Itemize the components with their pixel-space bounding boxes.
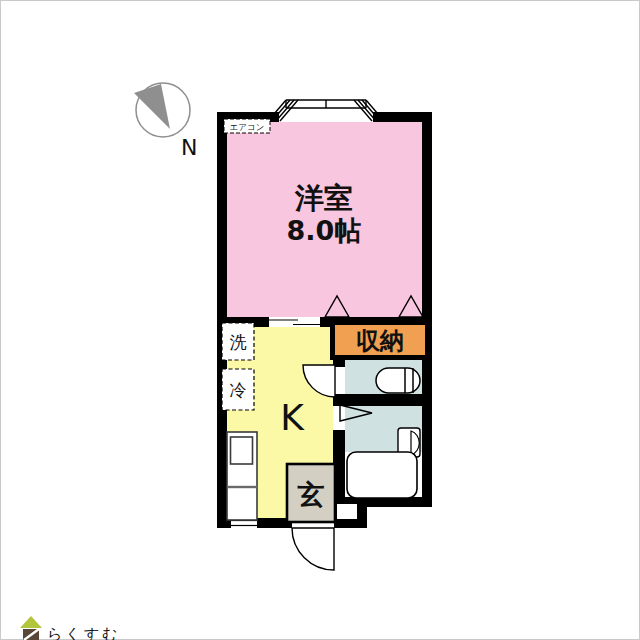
washer-label: 洗 (230, 332, 247, 352)
compass-north-label: N (181, 135, 197, 160)
entrance-step-box (336, 503, 358, 520)
entrance-label: 玄 (297, 479, 325, 510)
western-room-name: 洋室 (294, 181, 353, 215)
closet-label: 収納 (356, 327, 404, 355)
wall-right (422, 112, 432, 507)
brand-name: らくすむ (47, 625, 120, 640)
fridge-label: 冷 (230, 380, 247, 400)
logo-roof-icon (20, 616, 42, 628)
compass: N (134, 83, 197, 160)
wall-toilet-bath-divider (333, 394, 432, 406)
bay-window-icon (268, 100, 384, 121)
western-room-size: 8.0帖 (287, 215, 362, 246)
footer-logo: らくすむ (20, 616, 120, 640)
closet: 収納 (330, 320, 430, 360)
toilet-fixture (376, 368, 420, 393)
floorplan-page: 収納 エアコン 洗 冷 玄 洋室 (0, 0, 640, 640)
bathtub-icon (347, 452, 417, 498)
kitchen-label: K (280, 397, 305, 438)
floorplan-canvas: 収納 エアコン 洗 冷 玄 洋室 (0, 0, 640, 640)
entrance-door-swing-icon (292, 528, 334, 570)
opening-western-kitchen (269, 317, 320, 327)
kitchen-counter (227, 432, 257, 520)
aircon-label: エアコン (230, 122, 265, 132)
sink-icon (231, 437, 253, 464)
